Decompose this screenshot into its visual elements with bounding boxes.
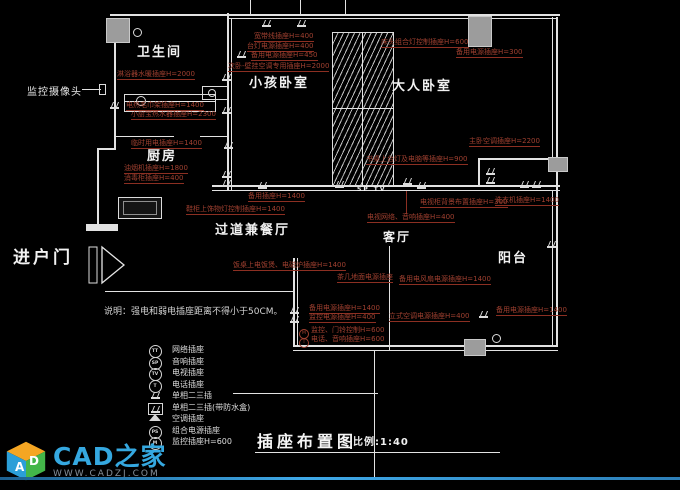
wall-segment: [114, 43, 116, 150]
legend-label: 网络插座: [172, 346, 204, 354]
drawing-scale: 比例:1:40: [353, 433, 409, 448]
column: [464, 339, 486, 356]
wall-segment: [250, 0, 251, 14]
legend-symbol-cell: [146, 403, 164, 415]
legend-row: 单相二三插(带防水盒): [146, 403, 306, 414]
balcony-drain-icon: [492, 334, 501, 343]
wall-segment: [552, 17, 553, 158]
socket-annotation: 油烟机插座H=1800: [124, 165, 188, 174]
wall-segment: [374, 350, 375, 477]
socket-annotation: 书桌上台灯及电脑等插座H=900: [366, 156, 468, 165]
wall-segment: [552, 190, 553, 345]
room-label: 厨房: [147, 150, 177, 163]
column: [468, 16, 492, 47]
room-label: 阳台: [498, 252, 528, 265]
site-logo[interactable]: A D CAD之家 WWW.CADZJ.COM: [6, 441, 166, 481]
socket-annotation: 次卧-壁挂空调专用插座H=2000: [228, 63, 329, 72]
socket-icon: [290, 315, 299, 323]
socket-icon: [222, 106, 231, 114]
socket-icon: [258, 181, 267, 189]
legend-label: 空调插座: [172, 415, 204, 423]
column: [106, 18, 130, 43]
room-label: 客厅: [383, 231, 411, 243]
legend-row: SP音响插座: [146, 357, 306, 368]
legend-socket-icon: [151, 391, 160, 399]
wall-segment: [478, 158, 550, 160]
legend-row: TV电视插座: [146, 368, 306, 379]
room-label: 过道兼餐厅: [215, 224, 290, 237]
cube-letter-d: D: [29, 455, 39, 467]
socket-icon: [547, 240, 556, 248]
wall-segment: [231, 18, 232, 190]
camera-icon: [99, 84, 106, 95]
socket-icon: [486, 167, 495, 175]
legend-socket-waterproof-icon: [148, 403, 163, 415]
wall-segment: [105, 291, 293, 292]
legend-label: 音响插座: [172, 358, 204, 366]
wall-segment: [255, 452, 500, 453]
socket-icon: [290, 306, 299, 314]
wall-segment: [200, 136, 229, 137]
wall-segment: [86, 224, 118, 231]
wall-segment: [297, 258, 298, 345]
socket-annotation: 备用插座H=1400: [248, 193, 305, 202]
socket-annotation: T电话、音响插座H=600: [299, 336, 385, 348]
wall-segment: [293, 258, 295, 345]
legend-label: 单相二三插: [172, 392, 212, 400]
floorplan-canvas: 卫生间厨房小孩卧室大人卧室过道兼餐厅客厅阳台SP TV 淋浴器水暖插座H=200…: [0, 0, 680, 490]
legend-row: 空调插座: [146, 414, 306, 425]
camera-label: 监控摄像头: [27, 83, 82, 98]
socket-annotation: 茶几地面电源插座: [337, 274, 393, 283]
cube-letter-a: A: [15, 461, 24, 473]
wall-segment: [389, 246, 390, 350]
legend-label: 电话插座: [172, 381, 204, 389]
socket-annotation: 床头组合灯控制插座H=600: [381, 39, 469, 48]
logo-cube-icon: A D: [6, 441, 46, 481]
wall-segment: [114, 136, 174, 137]
socket-annotation: 备用电源插座H=1400: [496, 307, 567, 316]
footer-accent-line: [0, 477, 680, 480]
socket-icon: [222, 179, 231, 187]
legend-symbol-cell: [146, 414, 164, 421]
legend-label: 监控插座H=600: [172, 438, 232, 446]
socket-annotation: 宽带线插座H=400: [254, 33, 314, 42]
socket-icon: [110, 101, 119, 109]
wall-segment: [227, 13, 229, 191]
column: [548, 157, 568, 172]
floor-drain-icon: [133, 28, 142, 37]
wall-segment: [345, 0, 346, 14]
socket-annotation: 洗衣机插座H=1400: [495, 197, 559, 206]
socket-annotation: 饭桌上电饭煲、电磁炉插座H=1400: [233, 262, 346, 271]
legend-socket-icon: [151, 405, 160, 413]
note-text: 说明：强电和弱电插座距离不得小于50CM。: [104, 304, 283, 317]
annotation-leader-line: [406, 191, 407, 214]
wall-segment: [478, 158, 480, 187]
wall-segment: [293, 350, 558, 351]
legend-ac-socket-icon: [149, 414, 161, 421]
wall-segment: [110, 14, 560, 16]
room-label: 小孩卧室: [249, 77, 309, 90]
socket-annotation: 备用电源插座H=300: [456, 49, 523, 58]
toilet-icon: [208, 89, 216, 97]
socket-icon: [222, 170, 231, 178]
kitchen-stove-inner: [123, 201, 157, 215]
socket-icon: [237, 50, 246, 58]
socket-icon: [335, 180, 344, 188]
legend-label: 单相二三插(带防水盒): [172, 404, 250, 412]
legend-label: 组合电源插座: [172, 427, 220, 435]
socket-annotation: 消毒柜插座H=400: [124, 175, 184, 184]
socket-icon: [222, 73, 231, 81]
socket-icon: [417, 181, 426, 189]
wall-segment: [97, 148, 116, 150]
socket-icon: [479, 310, 488, 318]
wall-segment: [556, 17, 558, 347]
logo-brand: CAD之家: [53, 444, 166, 469]
socket-annotation: 备用电源插座H=450: [251, 52, 318, 61]
legend-symbol-cell: [146, 391, 164, 399]
entry-door-label: 进户门: [13, 243, 73, 268]
drawing-title: 插座布置图: [257, 428, 357, 452]
socket-annotation: 淋浴器水暖插座H=2000: [117, 71, 195, 80]
room-label: 大人卧室: [392, 80, 452, 93]
socket-icon: [520, 180, 529, 188]
legend-row: 单相二三插: [146, 391, 306, 402]
entry-door-icon: [88, 244, 128, 286]
socket-icon: [262, 19, 271, 27]
room-label: SP TV: [357, 187, 387, 193]
socket-annotation: 鞋柜上饰物灯控制插座H=1400: [186, 206, 285, 215]
wardrobe-divider: [362, 32, 363, 186]
socket-annotation: 小厨宝热水器插座H=2300: [131, 111, 216, 120]
socket-icon: [486, 176, 495, 184]
socket-icon: [224, 141, 233, 149]
socket-annotation: 立式空调电源插座H=400: [389, 313, 470, 322]
wall-segment: [300, 0, 301, 14]
legend-row: T电话插座: [146, 380, 306, 391]
socket-icon: [297, 19, 306, 27]
legend-row: TT网络插座: [146, 345, 306, 356]
room-label: 卫生间: [137, 46, 182, 59]
socket-icon: [403, 177, 412, 185]
wall-segment: [228, 18, 558, 19]
socket-icon: [532, 180, 541, 188]
socket-annotation: 监控电源插座H=400: [309, 314, 376, 323]
wardrobe-divider: [332, 108, 394, 109]
socket-annotation: 临时用电插座H=1400: [131, 140, 202, 149]
legend-label: 电视插座: [172, 369, 204, 377]
socket-annotation: 备用电风扇电源插座H=1400: [399, 276, 491, 285]
socket-annotation: 主卧空调插座H=2200: [469, 138, 540, 147]
wall-segment: [97, 148, 99, 226]
socket-annotation: 电视网络、音响插座H=400: [367, 214, 455, 223]
